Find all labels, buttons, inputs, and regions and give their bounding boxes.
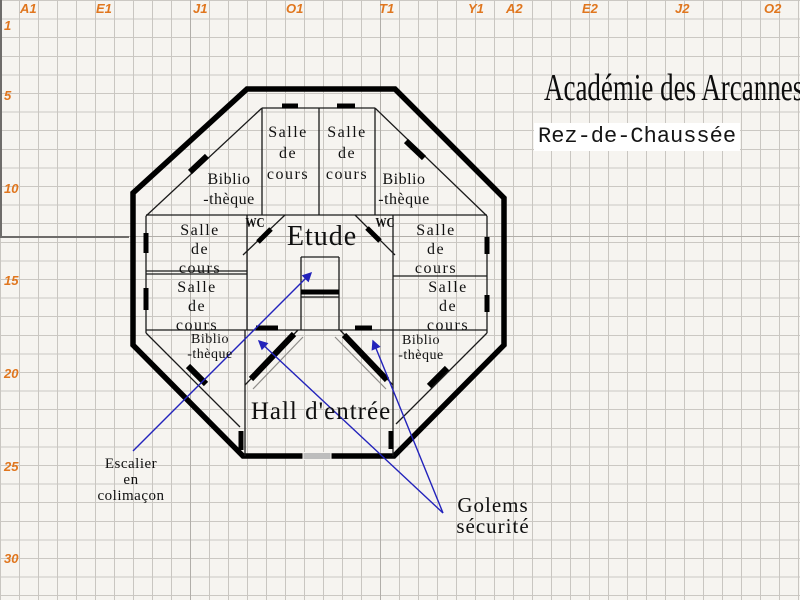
room-label-study: Etude [287,221,357,253]
entrance-door [303,453,331,460]
room-label-library-top-right: Biblio-thèque [378,170,429,210]
room-label-classroom-mid-left-2: Salledecours [176,278,218,335]
annotation-spiral-staircase: Escalierencolimaçon [98,456,165,504]
room-label-library-bottom-left: Biblio-thèque [187,332,232,362]
room-label-classroom-mid-right-1: Salledecours [415,221,457,278]
room-label-wc-left: WC [245,216,264,232]
door-swing-lines [253,337,386,389]
annotation-security-golems: Golemssécurité [456,495,529,537]
room-label-classroom-top-right: Salledecours [326,122,368,185]
map-title: Académie des Arcannes [544,66,800,110]
room-label-classroom-mid-right-2: Salledecours [427,278,469,335]
room-label-entrance-hall: Hall d'entrée [251,398,391,426]
map-subtitle: Rez-de-Chaussée [534,123,740,151]
room-label-classroom-top-left: Salledecours [267,122,309,185]
room-label-classroom-mid-left-1: Salledecours [179,221,221,278]
floor-plan-canvas[interactable]: A1 E1 J1 O1 T1 Y1 A2 E2 J2 O2 1 5 10 15 … [0,0,800,600]
room-label-library-top-left: Biblio-thèque [203,170,254,210]
room-label-library-bottom-right: Biblio-thèque [398,333,443,363]
room-label-wc-right: WC [375,216,394,232]
